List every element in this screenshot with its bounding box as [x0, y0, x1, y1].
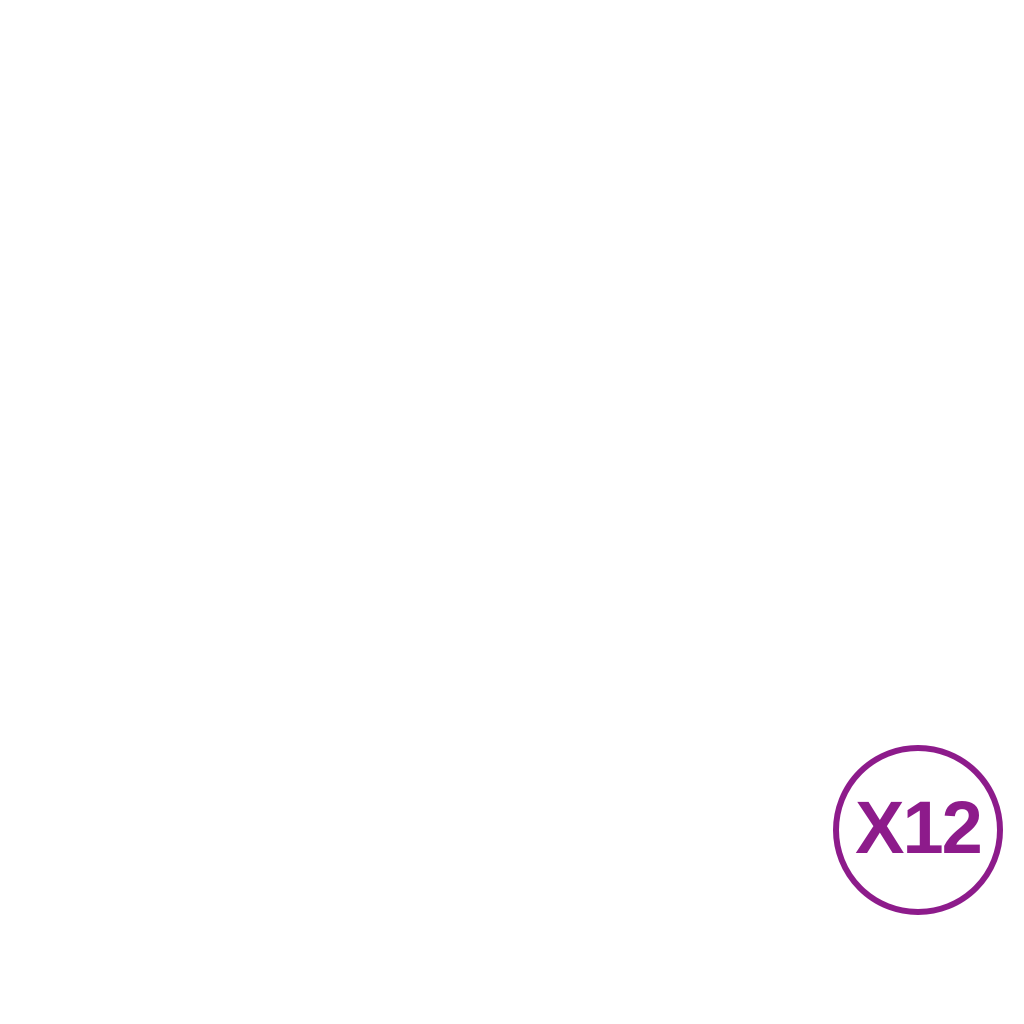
- vertical-bar-lower: [753, 507, 760, 899]
- screw-hole-left: [31, 398, 37, 404]
- screw-hole-right: [803, 643, 809, 649]
- vertical-bar-lower: [270, 507, 277, 899]
- screw-hole-right: [803, 860, 809, 866]
- vertical-bar-upper: [127, 124, 134, 507]
- vertical-bar-lower: [318, 507, 325, 899]
- mounting-tab-top: [415, 110, 426, 119]
- vertical-bar-upper: [707, 124, 714, 507]
- vertical-bar-lower: [463, 507, 470, 899]
- vertical-bar-upper: [79, 124, 86, 507]
- screw-hole-left: [31, 860, 37, 866]
- vertical-bar-lower: [608, 507, 615, 899]
- vertical-bar-lower: [656, 507, 663, 899]
- vertical-bar-upper: [224, 124, 231, 507]
- vertical-bar-upper: [465, 124, 472, 507]
- screw-hole-right: [803, 398, 809, 404]
- middle-rail: [36, 502, 805, 513]
- product-image-canvas: X12: [0, 0, 1024, 1024]
- fence-panel-frame: [28, 110, 813, 911]
- vertical-bar-lower: [367, 507, 374, 899]
- vertical-bar-upper: [272, 124, 279, 507]
- mounting-tab-top: [221, 110, 232, 119]
- screw-hole-right: [803, 154, 809, 160]
- vertical-bar-upper: [755, 124, 762, 507]
- left-post: [28, 112, 41, 911]
- vertical-bar-lower: [415, 507, 422, 899]
- vertical-bar-lower: [705, 507, 712, 899]
- vertical-bar-upper: [610, 124, 617, 507]
- right-post: [800, 112, 813, 911]
- vertical-bar-lower: [125, 507, 132, 899]
- vertical-bar-upper: [562, 124, 569, 507]
- bottom-rail: [30, 893, 811, 905]
- vertical-bar-upper: [369, 124, 376, 507]
- quantity-badge: X12: [833, 745, 1003, 915]
- vertical-bar-lower: [560, 507, 567, 899]
- vertical-bar-upper: [417, 124, 424, 507]
- screw-hole-left: [31, 643, 37, 649]
- quantity-badge-label: X12: [855, 791, 981, 865]
- vertical-bar-lower: [173, 507, 180, 899]
- mounting-tab-top: [608, 110, 619, 119]
- vertical-bar-lower: [512, 507, 519, 899]
- vertical-bar-upper: [175, 124, 182, 507]
- vertical-bar-upper: [320, 124, 327, 507]
- vertical-bar-lower: [222, 507, 229, 899]
- vertical-bar-lower: [77, 507, 84, 899]
- vertical-bar-upper: [514, 124, 521, 507]
- top-rail: [30, 118, 811, 129]
- screw-hole-left: [31, 154, 37, 160]
- vertical-bar-upper: [658, 124, 665, 507]
